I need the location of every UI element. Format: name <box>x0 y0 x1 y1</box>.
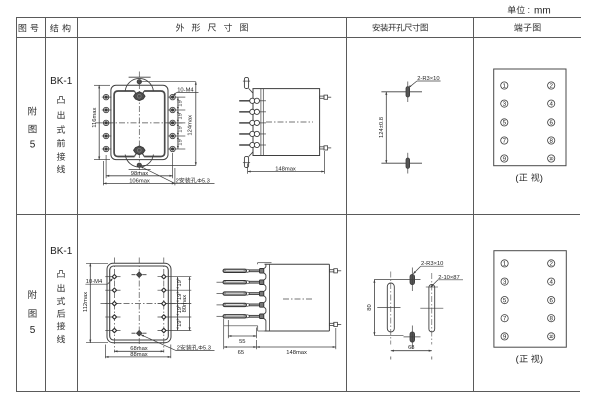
svg-text:19: 19 <box>177 320 183 326</box>
svg-text:19: 19 <box>178 100 184 106</box>
svg-text:(: ( <box>516 354 520 365</box>
svg-text:19: 19 <box>178 139 184 145</box>
svg-text:): ) <box>540 354 543 365</box>
svg-text:98max: 98max <box>131 171 149 177</box>
svg-text:BK-1: BK-1 <box>50 76 73 87</box>
svg-text:5: 5 <box>30 140 36 151</box>
svg-text:mm: mm <box>534 5 551 16</box>
svg-text:124±0.8: 124±0.8 <box>379 117 385 138</box>
svg-text:65: 65 <box>238 350 244 356</box>
svg-text:2-R3×10: 2-R3×10 <box>421 261 443 267</box>
svg-text:2: 2 <box>176 178 179 184</box>
svg-text:): ) <box>540 173 543 184</box>
svg-text:106max: 106max <box>129 179 150 185</box>
svg-text:116max: 116max <box>92 108 98 128</box>
svg-text:5: 5 <box>30 325 36 336</box>
svg-text:(: ( <box>515 173 519 184</box>
svg-text:68: 68 <box>408 345 414 351</box>
svg-text:80max: 80max <box>182 295 188 313</box>
svg-text:88max: 88max <box>130 352 148 358</box>
svg-text:19: 19 <box>177 280 183 286</box>
svg-text:80: 80 <box>367 304 373 310</box>
svg-text:Φ5.3: Φ5.3 <box>198 346 211 352</box>
svg-text:19: 19 <box>178 113 184 119</box>
svg-text:Φ5.3: Φ5.3 <box>197 178 210 184</box>
svg-text:2: 2 <box>177 346 180 352</box>
svg-text:124max: 124max <box>187 115 193 136</box>
svg-text:55: 55 <box>239 339 245 345</box>
svg-text:2-R3×10: 2-R3×10 <box>417 76 439 82</box>
svg-text:148max: 148max <box>275 167 296 173</box>
svg-text:148max: 148max <box>286 350 307 356</box>
svg-text:BK-1: BK-1 <box>50 246 73 257</box>
svg-text:19: 19 <box>178 126 184 132</box>
svg-text::: : <box>528 5 531 15</box>
svg-text:2-10×87: 2-10×87 <box>438 275 459 281</box>
svg-text:112max: 112max <box>83 292 89 312</box>
